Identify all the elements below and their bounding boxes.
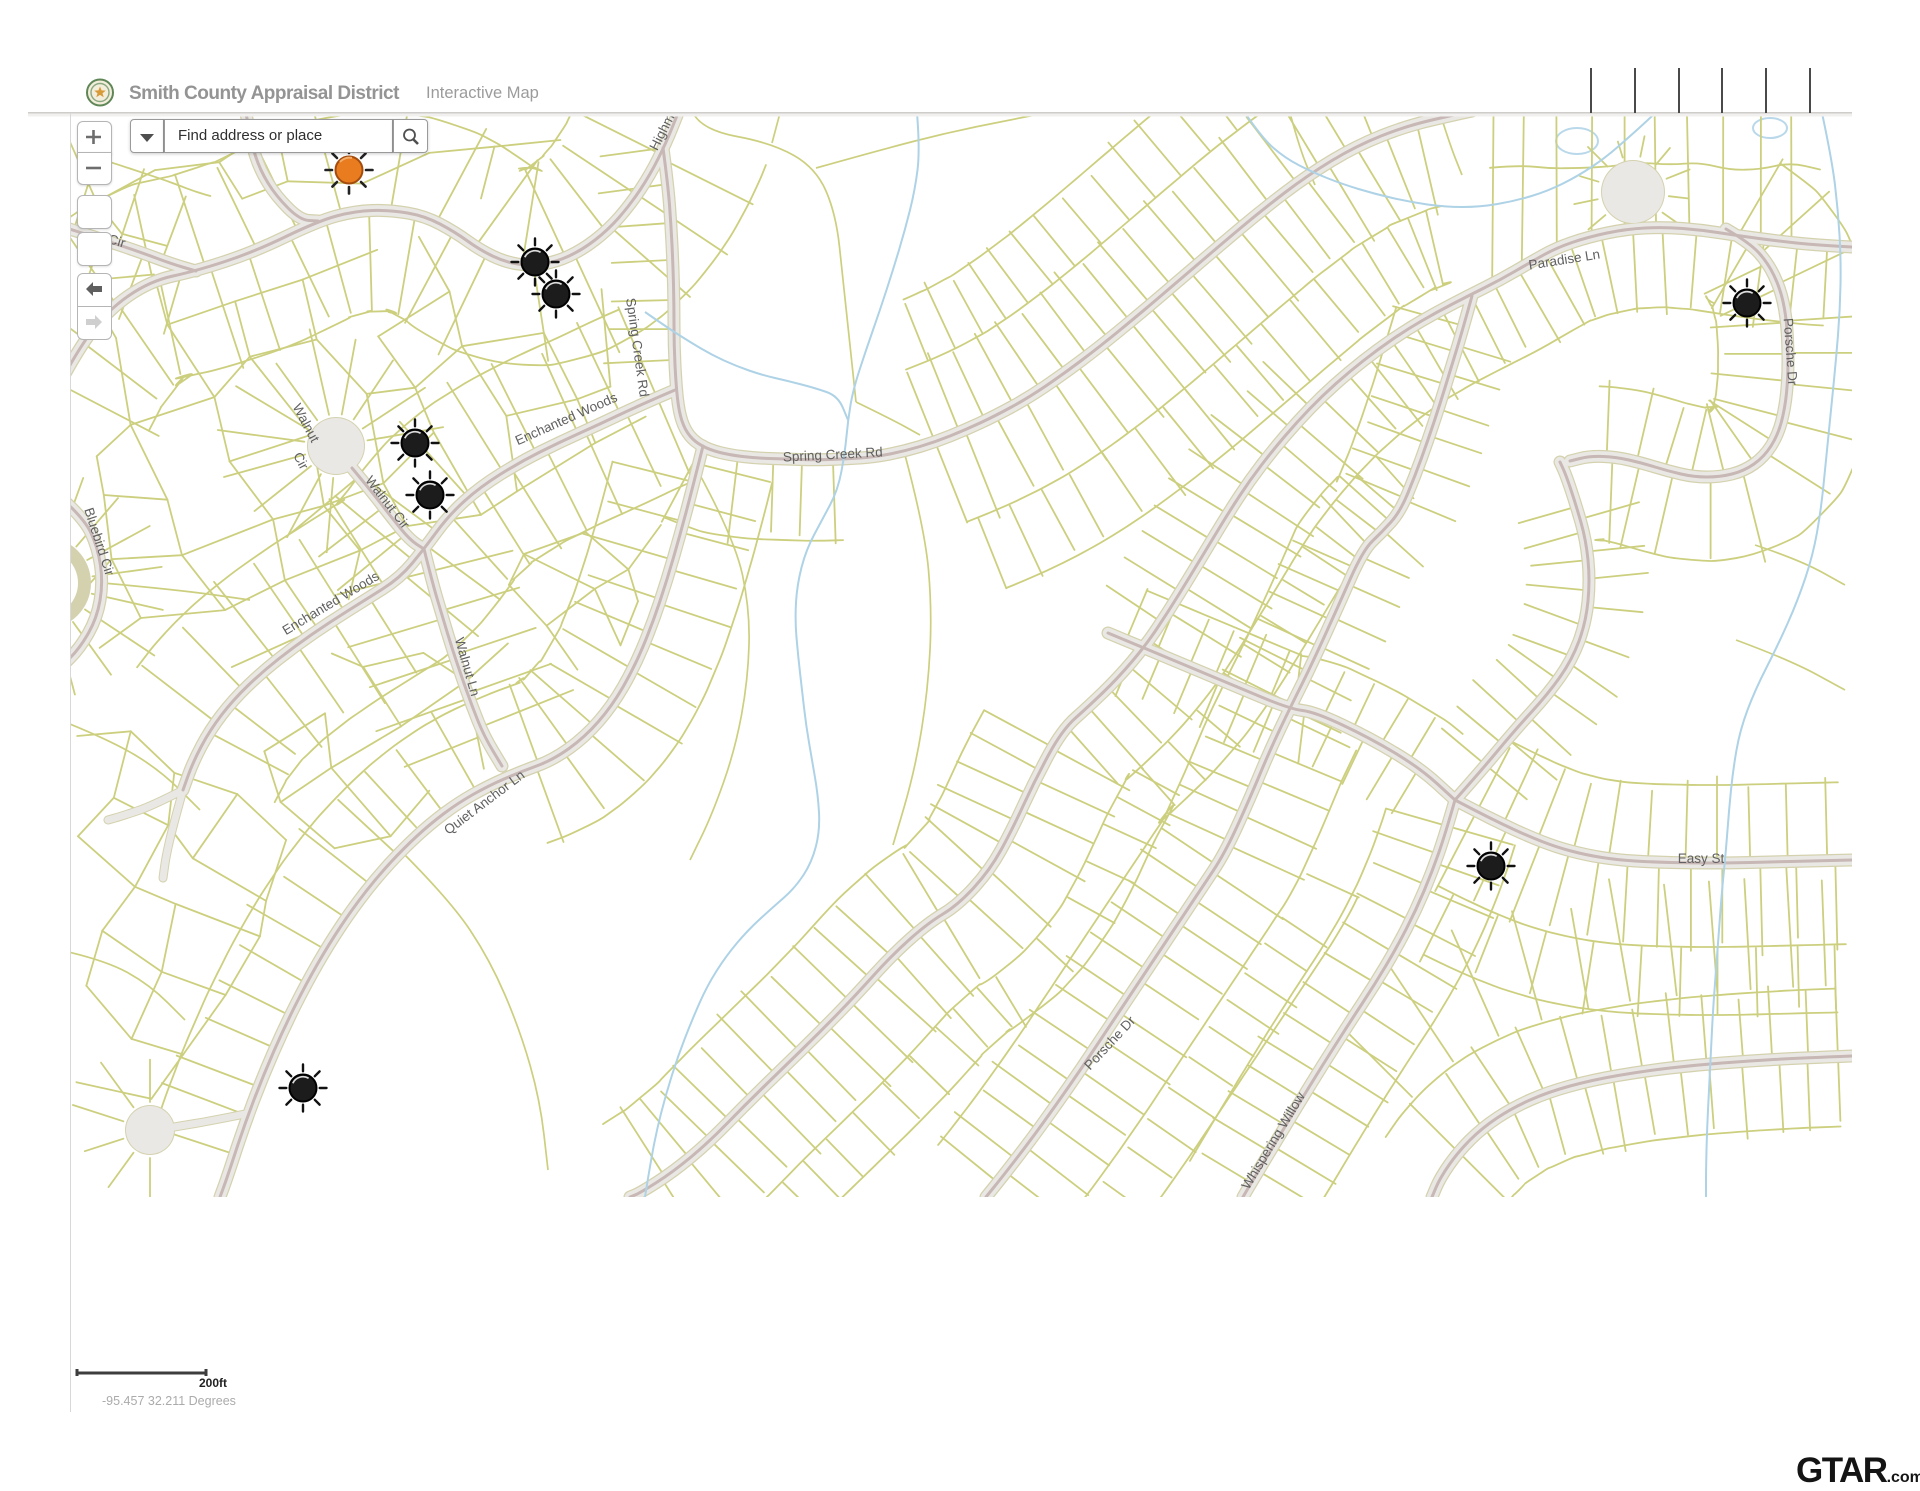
svg-text:200ft: 200ft <box>199 1376 227 1390</box>
svg-text:Easy St: Easy St <box>1678 851 1725 866</box>
